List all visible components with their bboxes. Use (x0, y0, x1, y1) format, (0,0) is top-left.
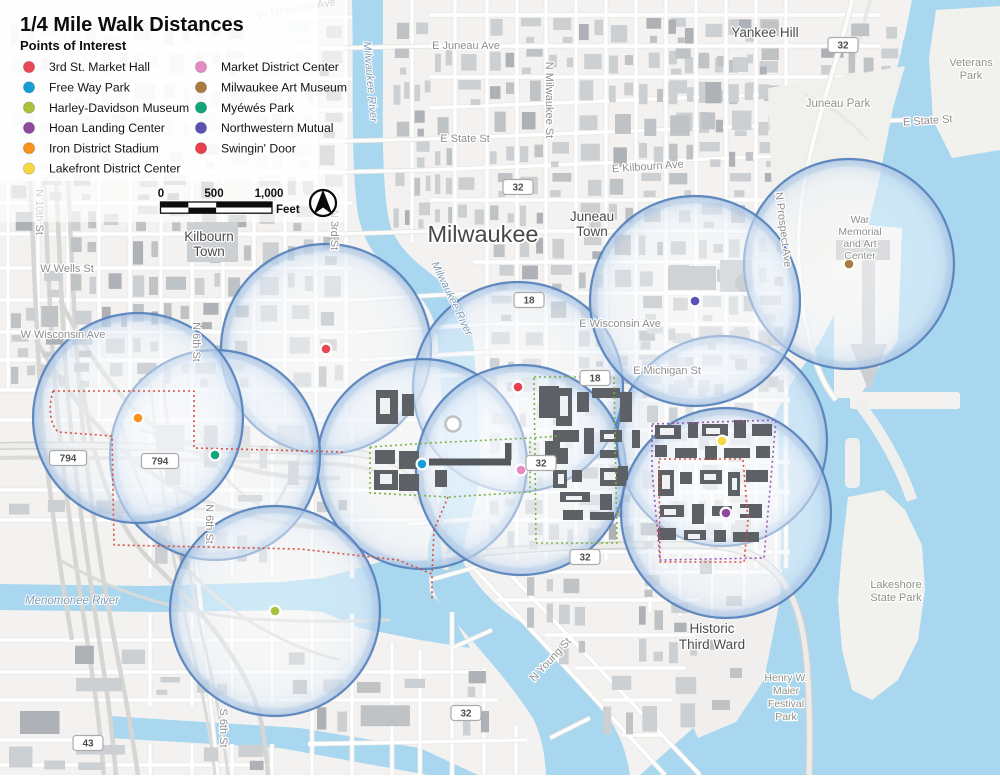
svg-text:Center: Center (844, 250, 876, 262)
svg-text:32: 32 (579, 553, 591, 564)
svg-text:Festival: Festival (768, 698, 804, 710)
svg-text:Market District Center: Market District Center (221, 60, 339, 74)
svg-text:Menomonee River: Menomonee River (25, 595, 120, 607)
svg-text:Memorial: Memorial (838, 226, 881, 238)
svg-text:18: 18 (523, 296, 535, 307)
svg-text:0: 0 (158, 188, 164, 200)
svg-text:Juneau: Juneau (570, 209, 614, 224)
svg-text:794: 794 (152, 457, 169, 468)
svg-text:43: 43 (82, 739, 94, 750)
svg-text:500: 500 (204, 188, 223, 200)
svg-text:Henry W.: Henry W. (764, 672, 807, 684)
svg-text:War: War (851, 214, 870, 226)
svg-text:Iron District Stadium: Iron District Stadium (49, 141, 159, 155)
svg-text:3rd St. Market Hall: 3rd St. Market Hall (49, 60, 150, 74)
svg-text:E Michigan St: E Michigan St (633, 365, 701, 377)
svg-text:Milwaukee: Milwaukee (427, 221, 538, 247)
svg-text:N Milwaukee St: N Milwaukee St (543, 62, 555, 138)
svg-text:Maier: Maier (773, 685, 800, 697)
svg-text:S 6th St: S 6th St (217, 708, 229, 747)
svg-text:Points of Interest: Points of Interest (20, 38, 127, 53)
svg-text:Juneau Park: Juneau Park (806, 98, 871, 110)
svg-text:N 6th St: N 6th St (203, 504, 215, 544)
svg-text:Veterans: Veterans (949, 57, 993, 69)
svg-text:Northwestern Mutual: Northwestern Mutual (221, 121, 333, 135)
svg-text:E Juneau Ave: E Juneau Ave (432, 40, 500, 52)
svg-text:Third Ward: Third Ward (679, 637, 745, 652)
svg-text:32: 32 (460, 709, 472, 720)
svg-text:Harley-Davidson Museum: Harley-Davidson Museum (49, 101, 189, 115)
svg-text:794: 794 (60, 454, 77, 465)
svg-text:Park: Park (960, 70, 983, 82)
svg-text:W Wells St: W Wells St (40, 263, 94, 275)
svg-text:32: 32 (837, 41, 849, 52)
svg-text:Feet: Feet (276, 204, 300, 216)
svg-text:Yankee Hill: Yankee Hill (731, 25, 798, 40)
svg-text:E State St: E State St (440, 133, 490, 145)
svg-text:Lakeshore: Lakeshore (870, 579, 921, 591)
svg-text:32: 32 (512, 183, 524, 194)
svg-text:Free Way Park: Free Way Park (49, 81, 131, 95)
svg-text:1/4 Mile Walk Distances: 1/4 Mile Walk Distances (20, 14, 244, 36)
svg-text:Myéwés Park: Myéwés Park (221, 101, 295, 115)
svg-text:Kilbourn: Kilbourn (184, 229, 234, 244)
svg-text:N 6th St: N 6th St (190, 322, 202, 362)
svg-text:18: 18 (589, 374, 601, 385)
svg-text:Milwaukee Art Museum: Milwaukee Art Museum (221, 81, 347, 95)
svg-text:1,000: 1,000 (255, 188, 284, 200)
svg-text:E Wisconsin Ave: E Wisconsin Ave (579, 318, 661, 330)
svg-text:32: 32 (535, 459, 547, 470)
svg-text:State Park: State Park (870, 592, 922, 604)
svg-text:Historic: Historic (689, 621, 734, 636)
svg-text:W Wisconsin Ave: W Wisconsin Ave (21, 329, 106, 341)
svg-text:Town: Town (576, 224, 608, 239)
svg-text:Swingin' Door: Swingin' Door (221, 141, 296, 155)
svg-text:Park: Park (775, 711, 797, 723)
svg-text:and Art: and Art (843, 238, 876, 250)
svg-text:Town: Town (193, 244, 225, 259)
svg-text:Hoan Landing Center: Hoan Landing Center (49, 121, 165, 135)
svg-text:Lakefront District Center: Lakefront District Center (49, 162, 180, 176)
